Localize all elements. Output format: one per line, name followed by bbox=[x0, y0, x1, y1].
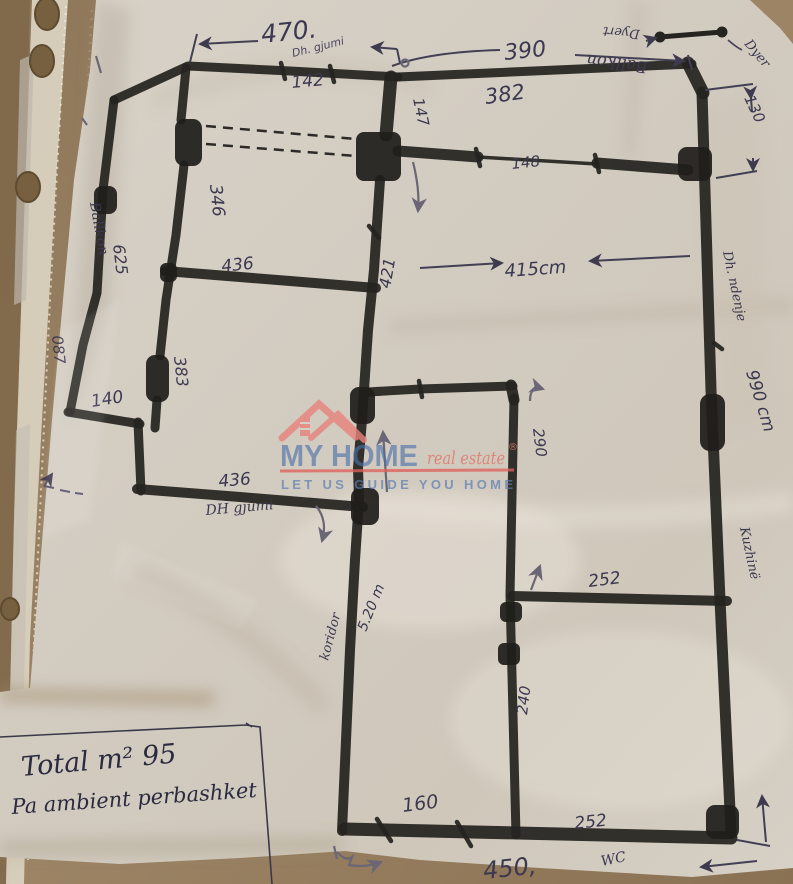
dim-kitchen-252-top: 252 bbox=[587, 568, 622, 592]
dim-balcony-390: 390 bbox=[503, 37, 547, 66]
door-balcony-bedroom1 bbox=[175, 119, 202, 166]
wall-balcony-sep-right bbox=[597, 163, 688, 170]
dim-bottom-450: 450, bbox=[482, 852, 538, 884]
wall-entry-147 bbox=[386, 77, 391, 135]
wall-balcony-inner-upper bbox=[181, 68, 186, 120]
wall-kitchen-top-252 bbox=[512, 596, 727, 601]
entry-block bbox=[356, 132, 401, 181]
dim-balcony-625: 625 bbox=[109, 243, 132, 276]
blob-balcony-right bbox=[678, 147, 712, 181]
watermark-underline bbox=[280, 470, 514, 471]
dim-bedroom2-383: 383 bbox=[170, 355, 192, 387]
dim-bedroom1-436: 436 bbox=[220, 254, 255, 277]
floor-plan-photo: 470. Dh. gjumi 142 390 Ballkon 382 Dyert… bbox=[0, 0, 793, 884]
door-corridor-bedroom2 bbox=[350, 387, 375, 424]
dim-kitchen-252-bottom: 252 bbox=[573, 811, 607, 834]
dim-wc-160: 160 bbox=[401, 791, 440, 817]
watermark-registered: ® bbox=[508, 442, 518, 453]
tick-wc-door-2 bbox=[498, 643, 520, 665]
door-living-right bbox=[700, 394, 725, 451]
dim-bedroom2-436: 436 bbox=[218, 469, 252, 492]
dim-opening-148: 148 bbox=[511, 152, 541, 173]
tick-wc-door-1 bbox=[500, 602, 522, 622]
wall-step-left bbox=[138, 422, 141, 491]
wall-outer-bottom bbox=[345, 829, 731, 838]
dim-kitchen-240: 240 bbox=[513, 685, 534, 716]
dim-living-415: 415cm bbox=[504, 257, 567, 282]
watermark-brand-secondary: real estate bbox=[427, 448, 505, 469]
watermark-brand: MY HOME bbox=[280, 438, 418, 473]
dim-living-290: 290 bbox=[529, 427, 550, 458]
door-balcony-bedroom2 bbox=[146, 355, 169, 402]
wall-balcony-sep-left bbox=[398, 151, 478, 157]
plan-canvas: 470. Dh. gjumi 142 390 Ballkon 382 Dyert… bbox=[0, 0, 793, 884]
dim-bedroom1-346: 346 bbox=[205, 183, 228, 218]
wall-balcony-inner-lower bbox=[155, 400, 157, 428]
wall-living-separator bbox=[368, 386, 513, 392]
dim-window-142: 142 bbox=[291, 70, 325, 93]
blob-bottom-right-corner bbox=[706, 805, 739, 839]
blob-corridor-corner bbox=[351, 488, 379, 525]
